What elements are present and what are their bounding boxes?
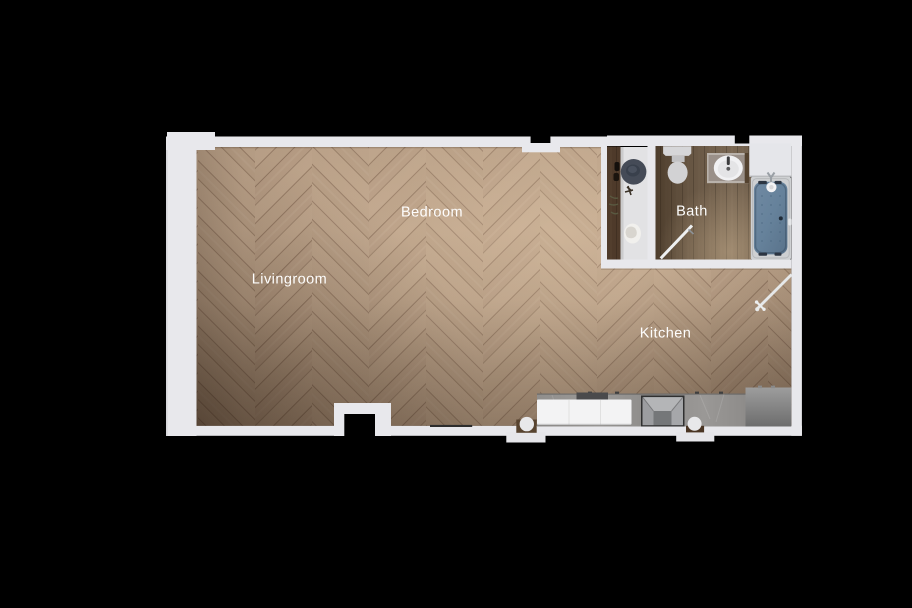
svg-text:Kitchen: Kitchen	[640, 325, 692, 341]
svg-text:Bedroom: Bedroom	[401, 205, 463, 221]
svg-text:Bath: Bath	[676, 204, 708, 220]
svg-text:Livingroom: Livingroom	[252, 271, 327, 287]
